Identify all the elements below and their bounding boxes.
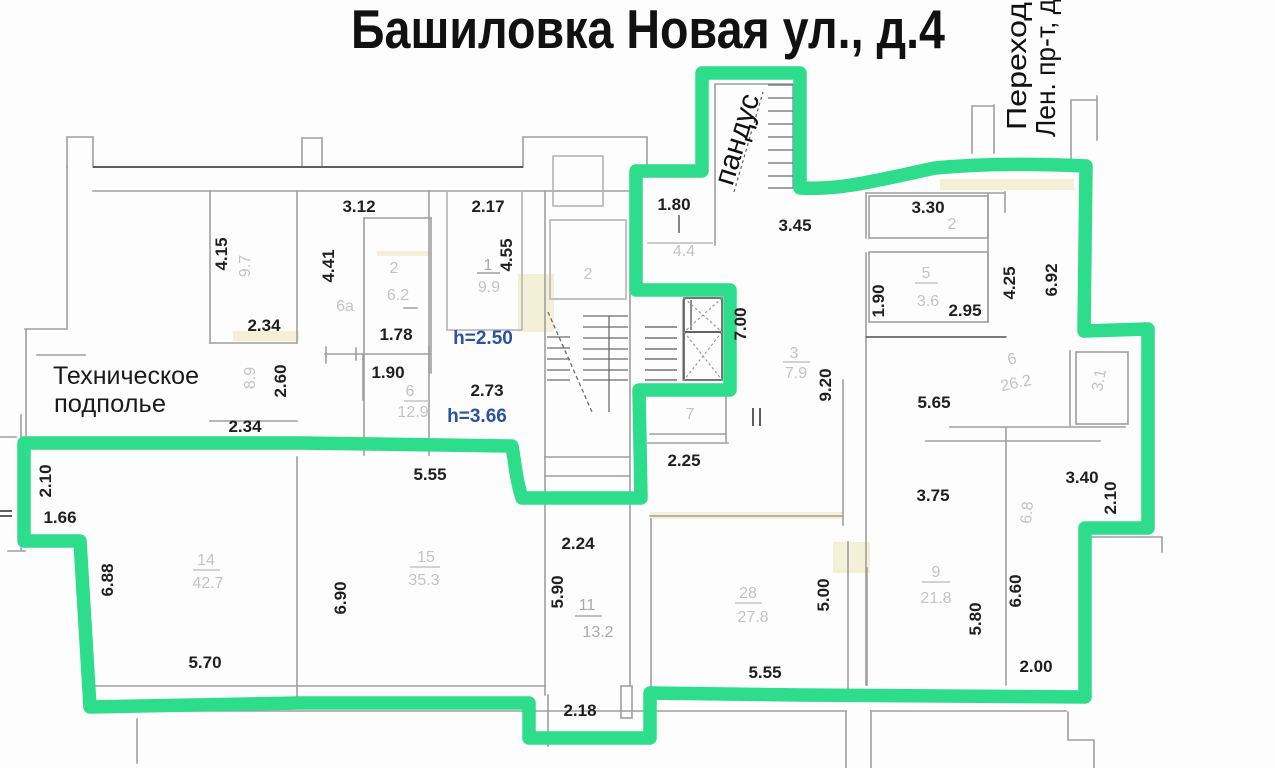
svg-text:2.17: 2.17: [471, 197, 504, 216]
svg-text:3.6: 3.6: [917, 293, 939, 310]
svg-text:4.25: 4.25: [1000, 266, 1019, 299]
svg-text:2: 2: [584, 266, 593, 283]
svg-text:15: 15: [417, 549, 435, 566]
svg-text:3.30: 3.30: [911, 198, 944, 217]
svg-text:9: 9: [932, 564, 941, 581]
svg-text:5.55: 5.55: [748, 663, 781, 682]
svg-text:6.92: 6.92: [1042, 263, 1061, 296]
svg-text:5: 5: [922, 265, 931, 282]
svg-text:2: 2: [948, 216, 957, 233]
svg-text:6.2: 6.2: [387, 287, 409, 304]
svg-text:Переход: Переход: [1001, 2, 1032, 130]
svg-text:9.20: 9.20: [816, 368, 835, 401]
svg-text:h=2.50: h=2.50: [453, 328, 513, 349]
svg-text:Башиловка Новая ул., д.4: Башиловка Новая ул., д.4: [351, 0, 945, 60]
svg-text:2.25: 2.25: [667, 451, 700, 470]
svg-text:2.60: 2.60: [271, 364, 290, 397]
svg-text:1.80: 1.80: [657, 195, 690, 214]
svg-text:6.8: 6.8: [1018, 501, 1037, 525]
svg-text:7.00: 7.00: [731, 307, 750, 340]
svg-text:12.9: 12.9: [397, 404, 428, 421]
svg-text:35.3: 35.3: [408, 572, 439, 589]
svg-text:5.55: 5.55: [413, 465, 446, 484]
svg-text:5.70: 5.70: [188, 653, 221, 672]
svg-text:4.41: 4.41: [319, 249, 338, 282]
svg-text:Техническое: Техническое: [53, 362, 199, 390]
svg-text:3.40: 3.40: [1065, 468, 1098, 487]
svg-text:подполье: подполье: [54, 390, 166, 418]
svg-text:4.15: 4.15: [212, 237, 231, 270]
svg-text:2.34: 2.34: [247, 316, 281, 335]
svg-text:21.8: 21.8: [920, 590, 951, 607]
svg-text:28: 28: [739, 585, 757, 602]
svg-text:3.45: 3.45: [778, 216, 811, 235]
svg-text:2.10: 2.10: [36, 464, 55, 497]
svg-text:6.90: 6.90: [331, 581, 350, 614]
svg-text:7.9: 7.9: [785, 365, 807, 382]
svg-text:27.8: 27.8: [737, 609, 768, 626]
svg-text:2.95: 2.95: [948, 301, 981, 320]
svg-text:5.90: 5.90: [548, 575, 567, 608]
svg-text:2.34: 2.34: [228, 417, 262, 436]
svg-text:2.73: 2.73: [470, 381, 503, 400]
svg-text:1.66: 1.66: [43, 508, 76, 527]
svg-text:4.4: 4.4: [673, 243, 695, 260]
svg-text:7: 7: [686, 406, 695, 423]
svg-text:1.78: 1.78: [379, 325, 412, 344]
svg-text:2.18: 2.18: [563, 701, 596, 720]
svg-text:13.2: 13.2: [582, 624, 613, 641]
svg-text:3.12: 3.12: [342, 197, 375, 216]
svg-text:2: 2: [390, 260, 399, 277]
svg-text:2.00: 2.00: [1019, 657, 1052, 676]
svg-text:h=3.66: h=3.66: [447, 406, 507, 427]
svg-text:1.90: 1.90: [869, 284, 888, 317]
svg-text:5.00: 5.00: [814, 578, 833, 611]
svg-text:6а: 6а: [336, 298, 354, 315]
svg-text:3.75: 3.75: [916, 486, 949, 505]
svg-text:4.55: 4.55: [497, 238, 516, 271]
svg-text:9.7: 9.7: [237, 255, 254, 277]
svg-text:1: 1: [484, 257, 493, 274]
svg-text:6.88: 6.88: [98, 563, 117, 596]
svg-text:5.65: 5.65: [917, 393, 950, 412]
svg-text:6: 6: [406, 383, 415, 400]
svg-text:9.9: 9.9: [478, 279, 500, 296]
svg-text:6.60: 6.60: [1006, 574, 1025, 607]
svg-text:8.9: 8.9: [242, 367, 259, 389]
svg-text:2.10: 2.10: [1101, 481, 1120, 514]
svg-text:42.7: 42.7: [192, 575, 223, 592]
svg-text:14: 14: [197, 552, 215, 569]
svg-text:1.90: 1.90: [371, 363, 404, 382]
svg-text:5.80: 5.80: [966, 602, 985, 635]
svg-text:3: 3: [790, 345, 799, 362]
svg-text:Лен. пр-т, д: Лен. пр-т, д: [1030, 0, 1061, 137]
svg-text:2.24: 2.24: [561, 534, 595, 553]
svg-text:11: 11: [579, 597, 596, 614]
